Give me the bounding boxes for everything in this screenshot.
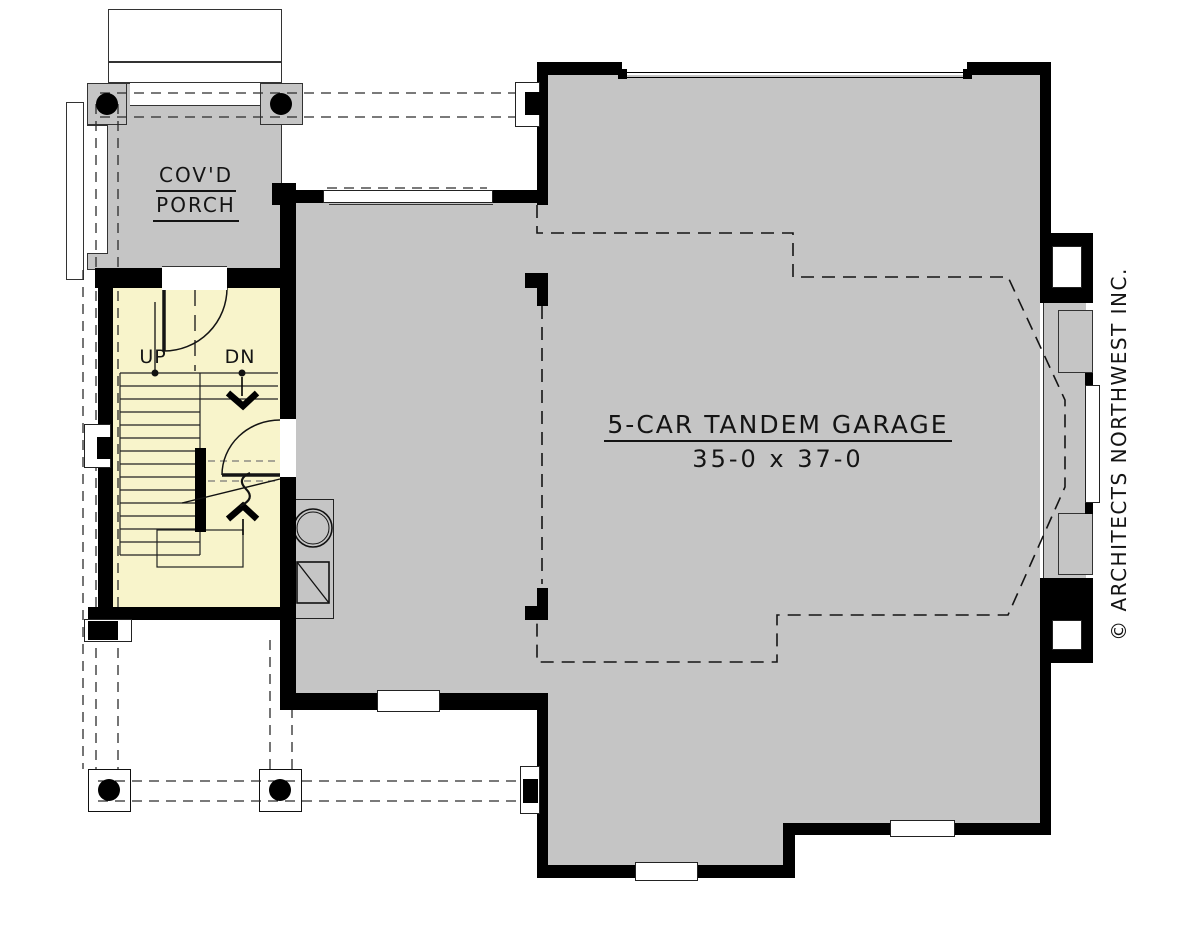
garage-area [783,693,1040,825]
porch-label-line1: COV'D [156,162,236,192]
stairs-down-label: DN [220,346,260,368]
window [377,690,440,712]
structural-post [537,588,548,608]
porch-left-opening [87,125,108,254]
porch-column-block [87,83,127,125]
window [890,820,955,837]
structural-post [525,606,548,620]
porch-top-opening [130,83,260,106]
door-opening [162,266,227,290]
wall-bump-core [523,779,538,803]
garage-door [622,72,967,73]
covered-porch-label: COV'D PORCH [126,162,266,222]
garage-door [622,77,967,78]
garage-door-stop [963,69,972,79]
bay-window [1052,246,1082,288]
window [635,862,698,881]
stairs-up-label: UP [133,346,173,368]
copyright-text: © ARCHITECTS NORTHWEST INC. [1107,244,1131,664]
door-opening [280,419,296,477]
appliance-platform [291,499,334,619]
porch-steps-top-inner [108,62,282,83]
porch-steps-top-outer [108,9,282,62]
column-footing [259,769,302,812]
stair-room-area [98,268,296,620]
bay-window [1052,620,1082,650]
garage-door-stop [618,69,627,79]
bay-window-mullion [1085,503,1093,514]
structural-post [537,286,548,306]
wall-bump-core [88,621,118,640]
wall [1040,663,1051,835]
bay-window-sill [1058,513,1093,575]
wall [493,190,547,203]
porch-column-block [260,83,303,125]
garage-area [548,693,783,867]
wall [537,62,622,75]
wall-bump-core [525,92,540,115]
bay-window-mullion [1085,373,1093,385]
bay-window-sill [1058,310,1093,373]
garage-dimensions: 35-0 x 37-0 [588,445,968,473]
porch-steps-left [66,102,84,280]
window-sill-line [329,204,493,205]
porch-label-line2: PORCH [153,192,239,222]
garage-name: 5-CAR TANDEM GARAGE [604,410,951,442]
wall-bump-core [97,437,112,459]
window [323,190,493,203]
wall [967,62,1051,75]
floor-plan-canvas: COV'D PORCH 5-CAR TANDEM GARAGE 35-0 x 3… [0,0,1200,943]
garage-label: 5-CAR TANDEM GARAGE 35-0 x 37-0 [588,410,968,473]
column-footing [88,769,131,812]
wall [1040,62,1051,233]
bay-picture-window [1085,385,1100,503]
